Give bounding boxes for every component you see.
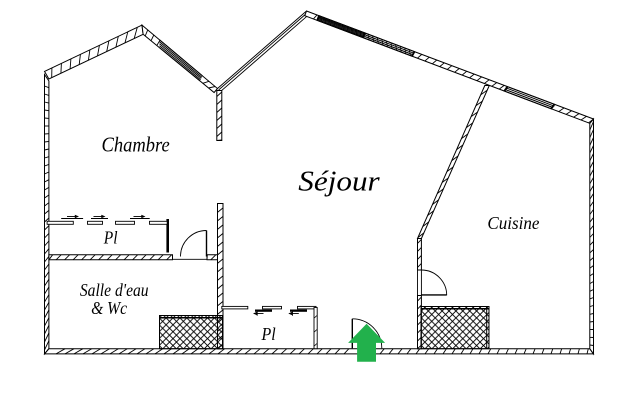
svg-text:Chambre: Chambre <box>102 133 170 157</box>
svg-text:Pl: Pl <box>261 324 276 344</box>
svg-text:Cuisine: Cuisine <box>487 213 539 233</box>
svg-text:Séjour: Séjour <box>298 165 380 197</box>
svg-text:& Wc: & Wc <box>91 298 127 318</box>
svg-text:Pl: Pl <box>103 228 118 248</box>
